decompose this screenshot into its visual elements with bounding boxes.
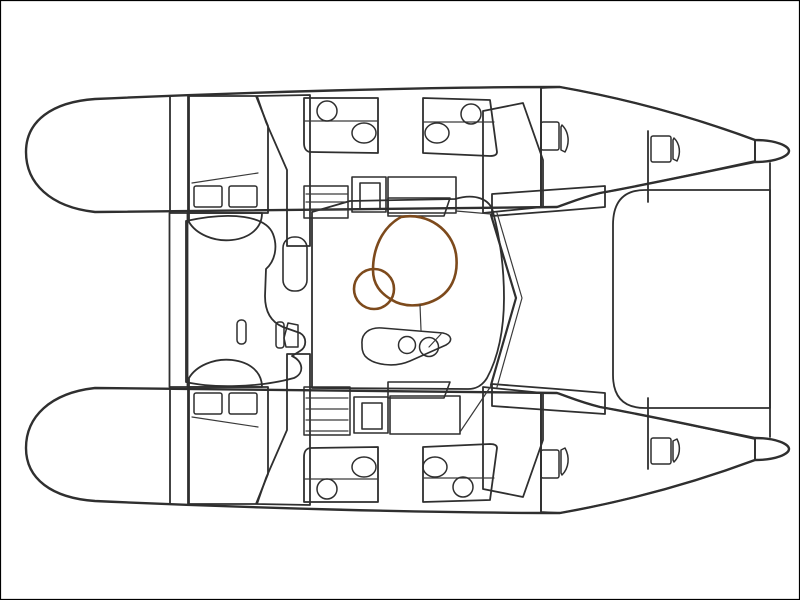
curtain-icon bbox=[673, 138, 679, 161]
head-room bbox=[423, 444, 497, 502]
cabin-window bbox=[651, 438, 671, 464]
starboard-head-aft bbox=[304, 447, 378, 502]
sink-icon bbox=[425, 123, 449, 143]
appliance-icon bbox=[362, 403, 382, 429]
port-head-aft bbox=[304, 98, 378, 153]
curtain-icon bbox=[561, 448, 568, 475]
port-hull bbox=[26, 87, 789, 212]
sink-icon bbox=[352, 123, 376, 143]
salon-table bbox=[373, 216, 457, 305]
salon-floor bbox=[312, 197, 504, 389]
port-head-forward bbox=[423, 98, 497, 156]
table-connector-line bbox=[420, 305, 421, 330]
sink-counter bbox=[362, 328, 451, 365]
cabin-fold-line bbox=[192, 173, 258, 183]
curtain-icon bbox=[561, 125, 568, 152]
head-room bbox=[304, 447, 378, 502]
cabin-window bbox=[194, 393, 222, 414]
faucet-icon bbox=[429, 334, 441, 347]
deck-hatch-center bbox=[469, 112, 473, 116]
cabin-window bbox=[229, 393, 257, 414]
head-room bbox=[423, 98, 497, 156]
extra-wc-label: + WC bbox=[686, 444, 738, 465]
head-room bbox=[304, 98, 378, 153]
deck-hatch-icon bbox=[461, 104, 481, 124]
image-border bbox=[1, 1, 800, 600]
floor-plan-canvas: + WC bbox=[0, 0, 800, 600]
curtain-icon bbox=[673, 439, 679, 462]
deck-hatch-center bbox=[325, 487, 329, 491]
deck-hatch-icon bbox=[453, 477, 473, 497]
stove-icon bbox=[360, 183, 380, 209]
door-latch bbox=[284, 323, 298, 347]
aft-beam-step bbox=[170, 213, 188, 387]
cabin-window bbox=[651, 136, 671, 162]
cabin-fold-line bbox=[192, 417, 258, 427]
cabin-window bbox=[541, 450, 559, 478]
sink-icon bbox=[399, 337, 416, 354]
port-side-deck bbox=[492, 186, 605, 216]
cabin-window bbox=[229, 186, 257, 207]
starboard-side-deck bbox=[492, 384, 605, 414]
nav-counter bbox=[390, 396, 460, 434]
helm-pedestal bbox=[237, 320, 246, 344]
salon bbox=[237, 177, 504, 435]
cabin-window bbox=[541, 122, 559, 150]
aft-starboard-cabin-seat bbox=[189, 360, 262, 387]
cabin-window bbox=[194, 186, 222, 207]
salon-forward-wall-inner bbox=[497, 213, 522, 387]
starboard-companionway-berth bbox=[257, 354, 310, 505]
starboard-head-forward bbox=[423, 444, 497, 502]
aft-port-cabin-seat bbox=[189, 213, 262, 240]
deck-hatch-center bbox=[461, 485, 465, 489]
deck-hatch-icon bbox=[317, 479, 337, 499]
sink-drain bbox=[405, 343, 409, 347]
plan-background bbox=[0, 0, 800, 600]
deck-hatch-icon bbox=[317, 101, 337, 121]
trampoline bbox=[613, 190, 770, 408]
catamaran-floor-plan: + WC bbox=[0, 0, 800, 600]
toilet-icon bbox=[352, 457, 376, 477]
toilet-icon bbox=[423, 457, 447, 477]
starboard-hull bbox=[26, 388, 789, 513]
deck-hatch-center bbox=[325, 109, 329, 113]
